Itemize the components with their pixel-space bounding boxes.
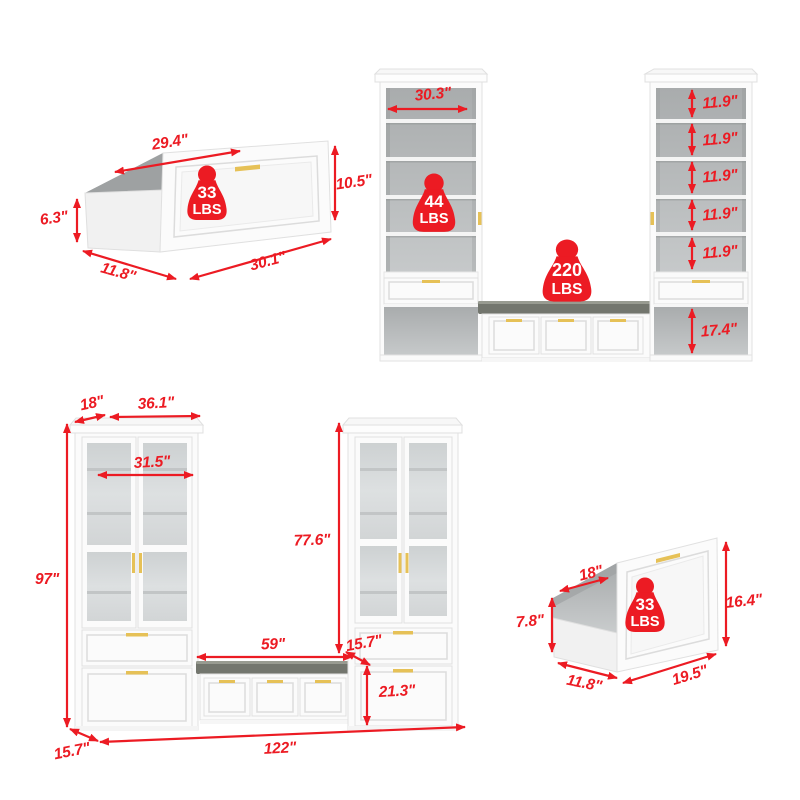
right-tower — [645, 69, 757, 361]
dim-drawer-front-height: 16.4" — [725, 591, 763, 613]
dim-shelf-height-3: 11.9" — [702, 166, 739, 187]
dim-shelf-height-4: 11.9" — [702, 204, 739, 225]
dim-tower-body-height: 77.6" — [293, 531, 330, 550]
dim-bench-height: 21.3" — [378, 682, 415, 702]
dim-total-height: 97" — [35, 571, 59, 589]
door-handle — [399, 553, 402, 573]
door-handle — [406, 553, 409, 573]
drawer-handle — [126, 633, 148, 637]
dim-drawer-side-height: 7.8" — [515, 612, 545, 632]
dim-shelf-height-2: 11.9" — [702, 129, 739, 150]
dim-shelf-height-5: 11.9" — [702, 242, 739, 263]
dim-base-height: 17.4" — [700, 320, 738, 341]
weight-badge-drawer-bottom: 33 LBS — [620, 577, 670, 635]
drawer-handle — [126, 671, 148, 675]
dim-total-width: 122" — [263, 739, 296, 759]
dim-inner-width: 30.3" — [414, 84, 452, 105]
wall-unit-full-illustration — [25, 385, 500, 780]
weight-badge-text: 33 LBS — [182, 184, 232, 219]
dim-bench-width: 59" — [261, 636, 286, 655]
door-handle — [132, 553, 135, 573]
door-handle — [139, 553, 142, 573]
panel-drawer-top-left: 29.4" 10.5" 6.3" 11.8" 30.1" 33 LBS — [30, 115, 380, 305]
dim-shelf-height-1: 11.9" — [702, 92, 739, 113]
door-edge-handle — [651, 212, 655, 225]
dim-inner-width: 31.5" — [133, 453, 170, 473]
door-edge-handle — [478, 212, 482, 225]
weight-badge-text: 33 LBS — [620, 596, 670, 631]
storage-bench — [196, 661, 354, 724]
weight-badge-drawer-top: 33 LBS — [182, 165, 232, 223]
product-dimension-sheet: { "colors": { "dimension_red": "#EC1B23"… — [0, 0, 800, 800]
drawer-handle — [393, 631, 413, 635]
drawer-handle — [422, 280, 440, 283]
weight-badge-bench: 220 LBS — [536, 239, 598, 305]
panel-drawer-bottom-right: 18" 7.8" 16.4" 11.8" 19.5" 33 LBS — [505, 515, 800, 725]
weight-badge-shelf: 44 LBS — [407, 173, 461, 235]
panel-wall-unit-full: 18" 36.1" 31.5" 97" 77.6" 59" 15.7" 21.3… — [25, 385, 500, 780]
dim-tower-width: 36.1" — [137, 394, 174, 414]
weight-badge-text: 44 LBS — [407, 193, 461, 228]
dim-drawer-side-height: 6.3" — [39, 208, 69, 230]
storage-bench — [478, 301, 654, 362]
weight-badge-text: 220 LBS — [536, 261, 598, 298]
drawer-handle — [393, 669, 413, 673]
drawer-handle — [692, 280, 710, 283]
panel-wall-unit-open: 30.3" 11.9" 11.9" 11.9" 11.9" 11.9" 17.4… — [370, 55, 800, 385]
